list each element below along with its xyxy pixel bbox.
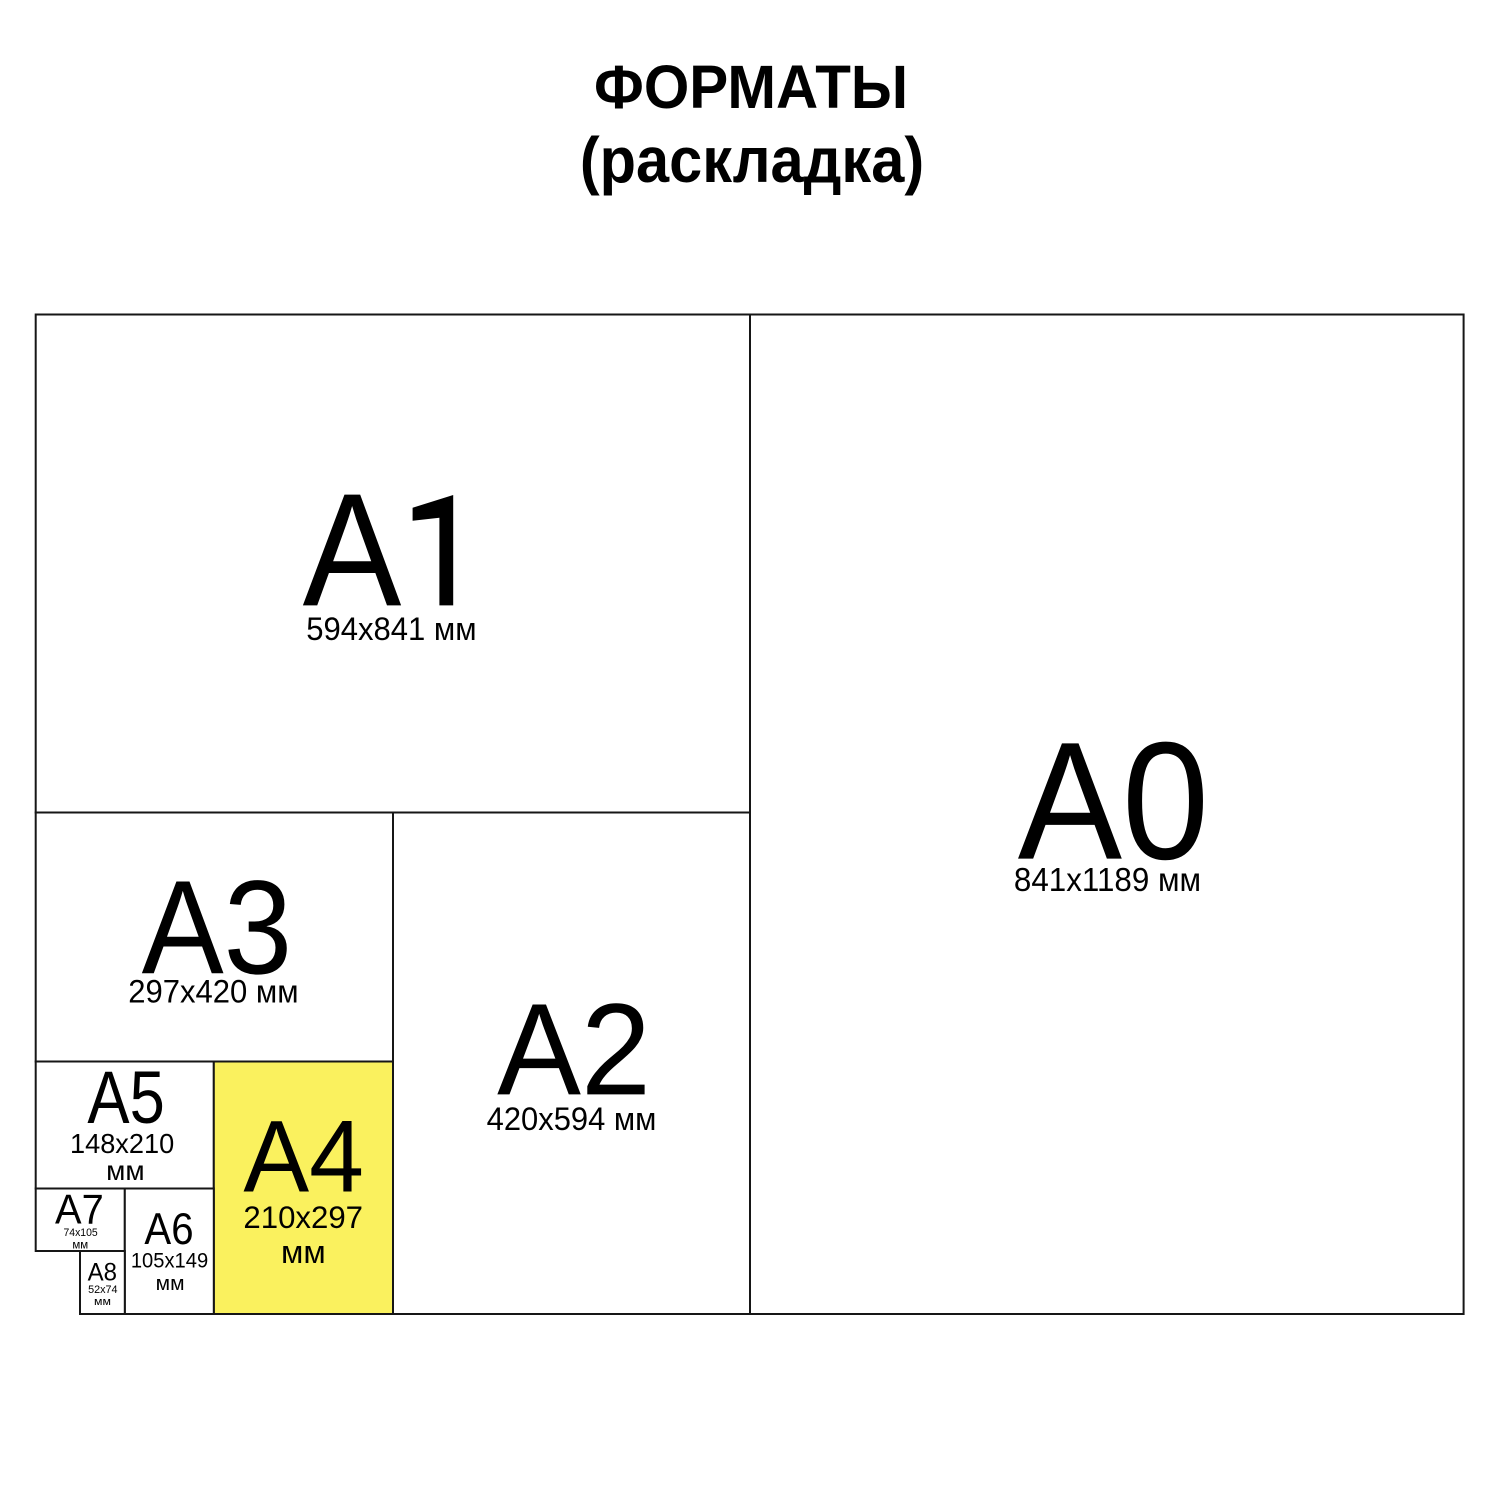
svg-text:210х297: 210х297 — [243, 1200, 363, 1235]
svg-text:420х594 мм: 420х594 мм — [487, 1102, 657, 1138]
svg-text:А4: А4 — [243, 1100, 364, 1214]
svg-text:мм: мм — [72, 1239, 88, 1251]
svg-text:мм: мм — [156, 1272, 185, 1294]
svg-text:52х74: 52х74 — [88, 1284, 117, 1296]
svg-text:841х1189 мм: 841х1189 мм — [1014, 861, 1201, 898]
svg-text:105х149: 105х149 — [131, 1249, 208, 1272]
svg-text:мм: мм — [106, 1155, 144, 1186]
svg-text:мм: мм — [94, 1295, 111, 1307]
svg-text:(раскладка): (раскладка) — [580, 125, 924, 196]
svg-text:74х105: 74х105 — [63, 1227, 97, 1239]
svg-text:мм: мм — [281, 1234, 326, 1270]
svg-text:А6: А6 — [144, 1204, 193, 1253]
svg-text:ФОРМАТЫ: ФОРМАТЫ — [594, 53, 908, 121]
svg-text:А8: А8 — [88, 1259, 117, 1287]
svg-text:А5: А5 — [87, 1055, 164, 1139]
svg-text:А7: А7 — [55, 1186, 104, 1233]
svg-text:297х420 мм: 297х420 мм — [128, 973, 298, 1010]
svg-text:594х841 мм: 594х841 мм — [306, 610, 476, 647]
